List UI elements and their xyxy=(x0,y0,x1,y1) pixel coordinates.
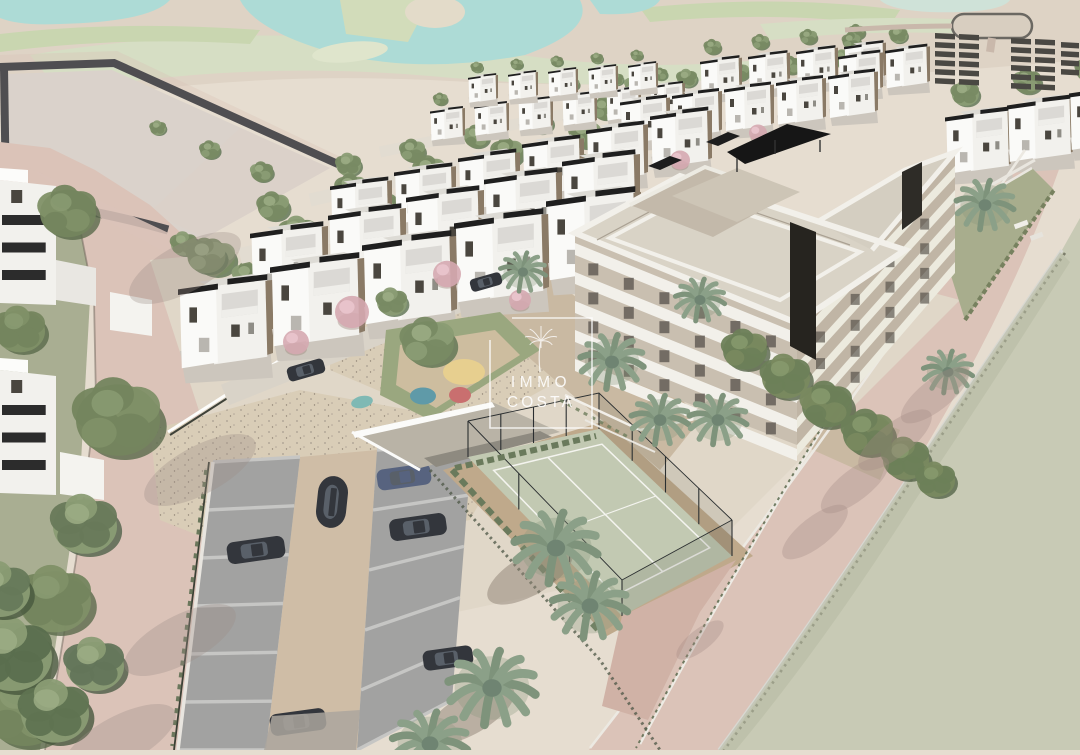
svg-text:IMMO: IMMO xyxy=(511,374,571,391)
svg-text:COSTA: COSTA xyxy=(507,394,575,411)
